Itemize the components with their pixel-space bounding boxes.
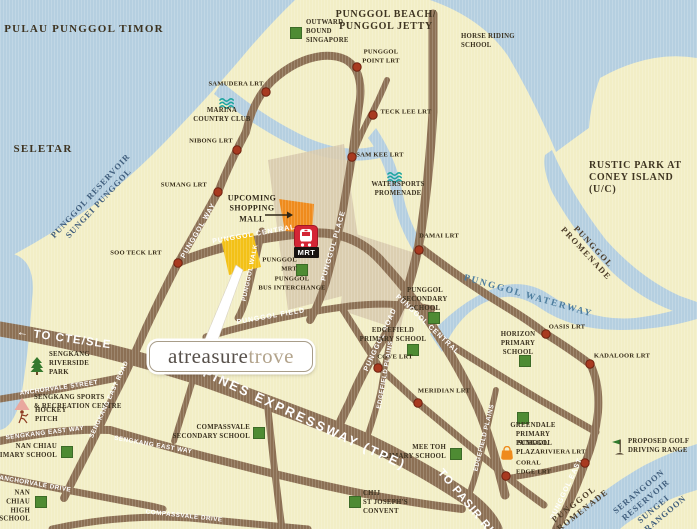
label-outward-bound: OUTWARD BOUND SINGAPORE xyxy=(306,19,349,45)
label-teck-lee-lrt: TECK LEE LRT xyxy=(381,109,432,118)
label-seletar: SELETAR xyxy=(14,143,73,157)
label-punggol-reservoir: PUNGGOL RESERVOIR SUNGEI PUNGGOL xyxy=(49,151,142,248)
label-punggol-mrt: PUNGGOL MRT xyxy=(262,256,297,273)
label-marina-country-club: MARINA COUNTRY CLUB xyxy=(193,107,250,125)
label-soo-teck-lrt: SOO TECK LRT xyxy=(110,250,162,259)
label-nibong-lrt: NIBONG LRT xyxy=(189,138,233,147)
label-chij-st-josephs-convent: CHIJ ST JOSEPH'S CONVENT xyxy=(363,490,408,516)
label-compassvale-secondary-school: COMPASSVALE SECONDARY SCHOOL xyxy=(173,424,250,442)
label-kadaloor-lrt: KADALOOR LRT xyxy=(594,353,650,362)
punggol-location-map: PULAU PUNGGOL TIMORPUNGGOL BEACH/ PUNGGO… xyxy=(0,0,697,529)
label-punggol-central-road-1: PUNGGOL CENTRAL xyxy=(212,224,296,246)
label-proposed-golf-driving-range: PROPOSED GOLF DRIVING RANGE xyxy=(628,438,689,456)
label-watersports-promenade: WATERSPORTS PROMENADE xyxy=(371,181,424,199)
label-pulau-punggol-timor: PULAU PUNGGOL TIMOR xyxy=(4,23,164,37)
label-damai-lrt: DAMAI LRT xyxy=(419,233,459,242)
logo-text-secondary: trove xyxy=(248,346,294,367)
label-riviera-lrt: RIVIERA LRT xyxy=(540,449,585,458)
label-sengkang-east-way-road-1: SENGKANG EAST WAY xyxy=(5,426,84,442)
label-edgefield-plains-road-2: EDGEFIELD PLAINS xyxy=(473,404,496,473)
label-punggol-walk-road: PUNGGOL WALK xyxy=(242,244,261,302)
label-cove-lrt: COVE LRT xyxy=(377,354,413,363)
label-upcoming-mall: UPCOMING SHOPPING MALL xyxy=(228,193,277,224)
atreasuretrove-logo: atreasuretrove xyxy=(149,341,313,372)
label-punggol-bus-interchange: PUNGGOL BUS INTERCHANGE xyxy=(258,275,325,292)
label-oasis-lrt: OASIS LRT xyxy=(549,324,586,333)
label-punggol-place-road: PUNGGOL PLACE xyxy=(320,210,347,282)
label-meridian-lrt: MERIDIAN LRT xyxy=(418,388,470,397)
mrt-badge: MRT xyxy=(294,247,319,258)
logo-text-primary: atreasure xyxy=(168,346,248,367)
label-punggol-promenade-1: PUNGGOL PROMENADE xyxy=(546,204,634,296)
label-compassvale-drive-road: COMPASSVALE DRIVE xyxy=(145,510,223,525)
label-rustic-park-coney: RUSTIC PARK AT CONEY ISLAND (U/C) xyxy=(589,160,682,196)
label-punggol-waterway: PUNGGOL WATERWAY xyxy=(462,273,594,321)
label-punggol-point-lrt: PUNGGOL POINT LRT xyxy=(362,48,400,65)
label-nan-chiau-primary-school: NAN CHIAU PRIMARY SCHOOL xyxy=(0,443,57,461)
label-punggol-way-road: PUNGGOL WAY xyxy=(180,202,218,260)
label-sam-kee-lrt: SAM KEE LRT xyxy=(356,152,403,161)
label-hockey-pitch: HOCKEY PITCH xyxy=(35,407,67,425)
label-coral-edge-lrt: CORAL EDGE LRT xyxy=(516,459,551,476)
label-layer: PULAU PUNGGOL TIMORPUNGGOL BEACH/ PUNGGO… xyxy=(0,0,697,529)
label-sumang-lrt: SUMANG LRT xyxy=(161,182,207,191)
label-to-cte-sle: ← TO CTE/SLE xyxy=(16,326,112,352)
label-horse-riding-school: HORSE RIDING SCHOOL xyxy=(461,33,515,51)
label-horizon-primary-school: HORIZON PRIMARY SCHOOL xyxy=(501,331,536,357)
label-punggol-beach-jetty: PUNGGOL BEACH/ PUNGGOL JETTY xyxy=(336,9,437,33)
label-nan-chiau-high-school: NAN CHIAU HIGH SCHOOL xyxy=(0,489,30,524)
label-sengkang-riverside-park: SENGKANG RIVERSIDE PARK xyxy=(49,351,90,377)
label-to-pasir-ris: TO PASIR RIS xyxy=(435,467,502,529)
label-punggol-field-road: PUNGGOL FIELD xyxy=(236,307,305,327)
label-samudera-lrt: SAMUDERA LRT xyxy=(208,81,263,90)
